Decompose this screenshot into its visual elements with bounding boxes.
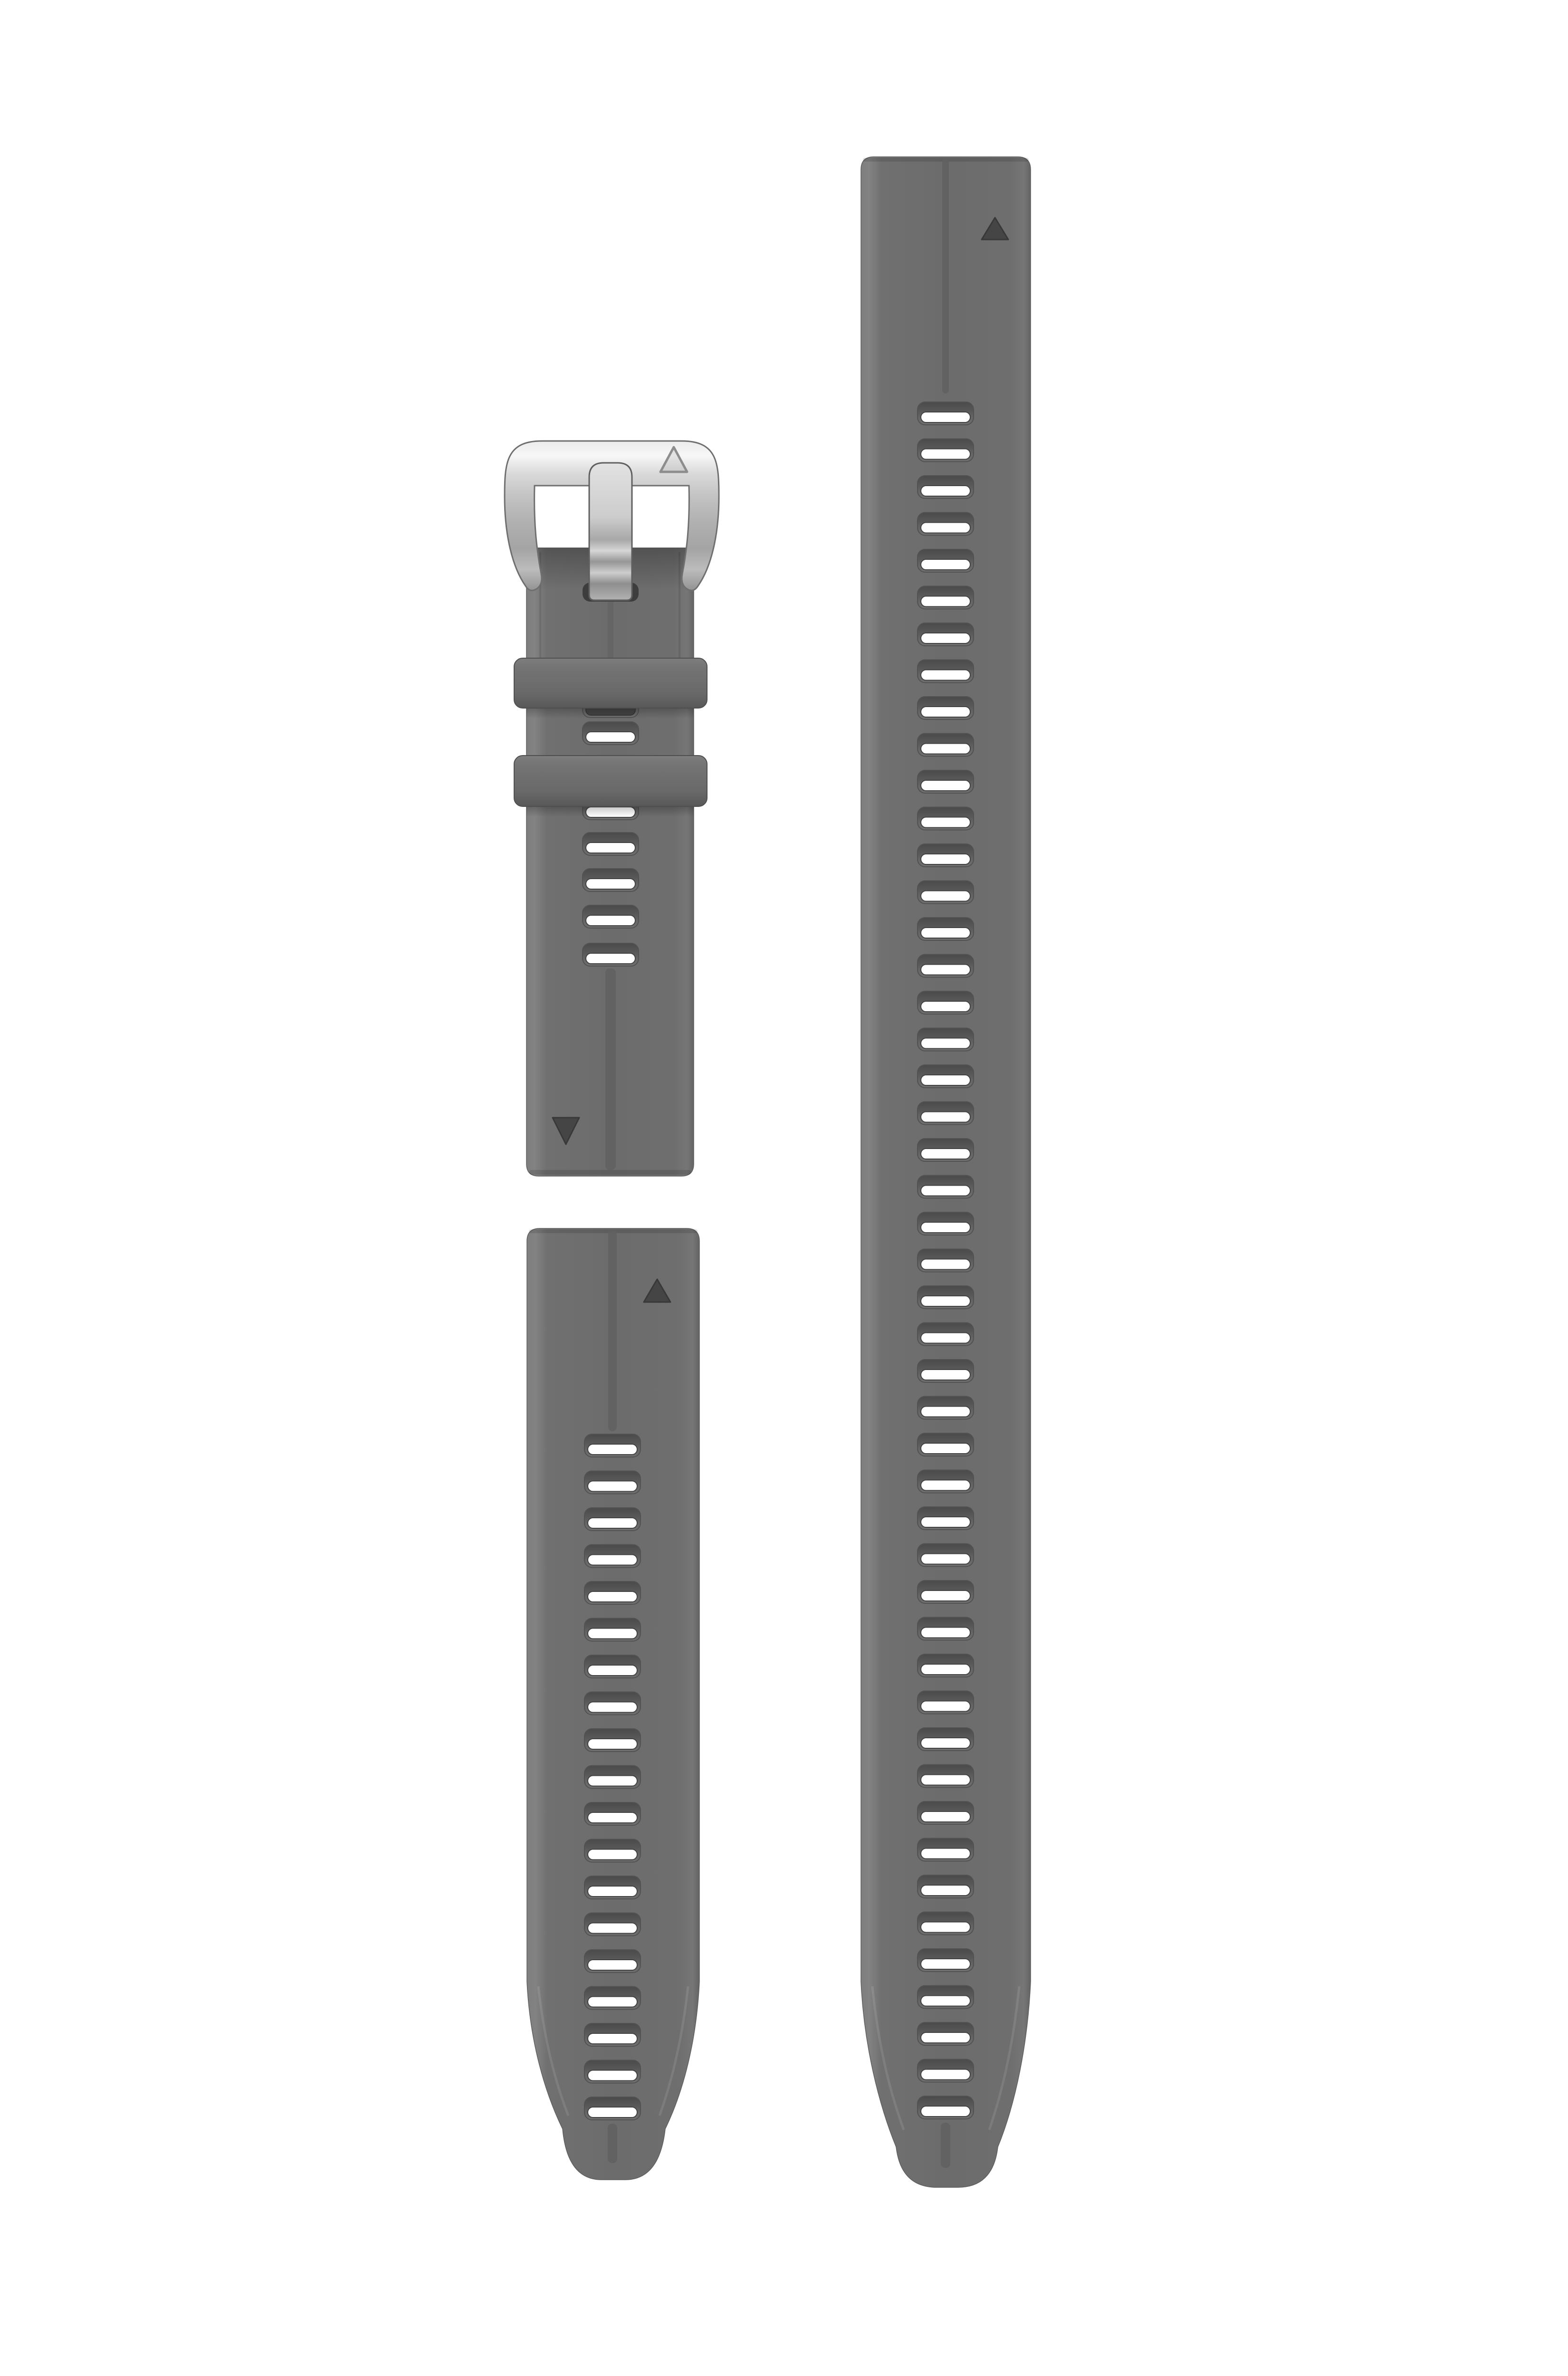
slot-hole xyxy=(588,1518,637,1528)
strap-slot xyxy=(584,1619,641,1641)
slot-hole xyxy=(586,879,635,889)
slot-hole xyxy=(921,1922,970,1933)
strap-slot xyxy=(584,1987,641,2010)
slot-hole xyxy=(588,1923,637,1934)
strap-slot xyxy=(918,1433,974,1456)
slot-hole xyxy=(921,1407,970,1417)
slot-hole xyxy=(588,2033,637,2044)
strap-slot xyxy=(918,549,974,572)
strap-slot xyxy=(918,844,974,867)
strap-slot xyxy=(584,1729,641,1752)
slot-hole xyxy=(921,412,970,422)
strap-slot xyxy=(918,1544,974,1567)
slot-hole xyxy=(921,1370,970,1380)
slot-hole xyxy=(921,1849,970,1859)
strap-slot xyxy=(918,881,974,904)
slot-hole xyxy=(921,449,970,460)
slot-hole xyxy=(586,953,635,964)
slot-hole xyxy=(921,1259,970,1270)
strap-slot xyxy=(584,1950,641,1973)
strap-slot xyxy=(918,1139,974,1161)
slot-hole xyxy=(921,817,970,828)
slot-hole xyxy=(586,732,635,742)
strap-slot xyxy=(918,1581,974,1603)
slot-hole xyxy=(921,744,970,754)
strap-slot xyxy=(584,1839,641,1862)
slot-hole xyxy=(921,1480,970,1491)
slot-hole xyxy=(921,1075,970,1085)
strap-slot xyxy=(918,1654,974,1677)
slot-hole xyxy=(921,1517,970,1527)
strap-slot xyxy=(918,2022,974,2045)
slot-hole xyxy=(921,1996,970,2006)
slot-hole xyxy=(921,559,970,570)
strap-slot xyxy=(918,734,974,757)
strap-slot xyxy=(584,2097,641,2120)
center-groove xyxy=(605,968,616,1170)
slot-hole xyxy=(921,1885,970,1896)
slot-hole xyxy=(921,2106,970,2117)
strap-slot xyxy=(918,1839,974,1861)
strap-slot xyxy=(918,513,974,536)
strap-slot xyxy=(584,2023,641,2046)
slot-hole xyxy=(921,1112,970,1122)
strap-slot xyxy=(918,918,974,940)
slot-hole xyxy=(588,1849,637,1860)
strap-slot xyxy=(918,1618,974,1640)
buckle-strap xyxy=(514,548,707,1176)
strap-slot xyxy=(584,1802,641,1825)
strap-slot xyxy=(918,807,974,830)
slot-hole xyxy=(921,965,970,975)
slot-hole xyxy=(921,1001,970,1012)
slot-hole xyxy=(588,2070,637,2081)
strap-slot xyxy=(918,1765,974,1788)
slot-hole xyxy=(921,1664,970,1675)
strap-slot xyxy=(918,770,974,793)
slot-hole xyxy=(588,1665,637,1676)
center-groove xyxy=(608,2124,617,2163)
slot-hole xyxy=(588,1776,637,1786)
strap-slot xyxy=(918,1801,974,1824)
strap-slot xyxy=(918,1286,974,1309)
slot-hole xyxy=(921,1628,970,1638)
strap-slot xyxy=(584,1876,641,1899)
strap-slot xyxy=(583,905,639,928)
slot-hole xyxy=(921,1038,970,1049)
strap-slot xyxy=(918,476,974,498)
strap-slot xyxy=(918,439,974,462)
strap-slot xyxy=(584,1766,641,1789)
slot-hole xyxy=(921,1738,970,1748)
background xyxy=(0,0,1568,2376)
strap-slot xyxy=(584,1581,641,1604)
slot-hole xyxy=(588,1591,637,1602)
center-groove xyxy=(942,159,949,393)
strap-slot xyxy=(918,1728,974,1751)
slot-hole xyxy=(588,1444,637,1455)
strap-slot xyxy=(918,623,974,646)
slot-hole xyxy=(921,2069,970,2080)
strap-slot xyxy=(918,660,974,683)
slot-hole xyxy=(921,928,970,938)
strap-slot xyxy=(584,1508,641,1531)
strap-slot xyxy=(583,833,639,855)
slot-hole xyxy=(921,633,970,643)
strap-slot xyxy=(584,1655,641,1678)
long-dive-extension-strap xyxy=(861,157,1031,2187)
strap-slot xyxy=(918,1212,974,1235)
strap-keeper-loop xyxy=(514,756,707,806)
strap-slot xyxy=(918,1470,974,1493)
slot-hole xyxy=(588,1739,637,1749)
slot-hole xyxy=(586,915,635,926)
slot-hole xyxy=(921,1333,970,1343)
strap-slot xyxy=(918,1912,974,1935)
slot-hole xyxy=(921,486,970,496)
center-groove xyxy=(941,2123,950,2168)
strap-slot xyxy=(918,1691,974,1714)
strap-slot xyxy=(583,869,639,891)
slot-hole xyxy=(921,1811,970,1822)
strap-slot xyxy=(918,1176,974,1198)
strap-slot xyxy=(918,2096,974,2119)
strap-slot xyxy=(584,1913,641,1936)
slot-hole xyxy=(921,1590,970,1601)
slot-hole xyxy=(588,1812,637,1823)
strap-slot xyxy=(918,1360,974,1382)
slot-hole xyxy=(921,1186,970,1196)
strap-slot xyxy=(584,1434,641,1457)
slot-hole xyxy=(921,1701,970,1712)
keeper-shadow xyxy=(526,806,694,817)
strap-slot xyxy=(918,697,974,719)
buckle-tongue xyxy=(589,463,632,600)
strap-slot xyxy=(918,1102,974,1125)
strap-slot xyxy=(918,1249,974,1272)
slot-hole xyxy=(921,523,970,533)
slot-hole xyxy=(921,1443,970,1454)
slot-hole xyxy=(588,1997,637,2007)
strap-slot xyxy=(918,586,974,609)
slot-hole xyxy=(921,596,970,607)
slot-hole xyxy=(588,1555,637,1565)
strap-slot xyxy=(584,2060,641,2083)
strap-keeper-loop xyxy=(514,658,707,708)
strap-slot xyxy=(584,1692,641,1715)
slot-hole xyxy=(588,2107,637,2117)
slot-hole xyxy=(588,1481,637,1492)
strap-slot xyxy=(584,1471,641,1494)
strap-slot xyxy=(918,991,974,1014)
slot-hole xyxy=(588,1886,637,1897)
slot-hole xyxy=(586,843,635,853)
strap-slot xyxy=(918,1949,974,1972)
strap-slot xyxy=(584,1545,641,1568)
slot-hole xyxy=(921,1222,970,1233)
strap-slot xyxy=(583,722,639,745)
strap-slot xyxy=(918,402,974,425)
slot-hole xyxy=(921,670,970,680)
strap-slot xyxy=(918,1397,974,1419)
slot-hole xyxy=(588,1702,637,1713)
strap-slot xyxy=(918,1028,974,1051)
strap-slot xyxy=(918,1323,974,1346)
slot-hole xyxy=(588,1629,637,1639)
slot-hole xyxy=(921,1554,970,1564)
strap-slot xyxy=(918,955,974,977)
center-groove xyxy=(608,1230,617,1431)
strap-slot xyxy=(918,2060,974,2082)
strap-slot xyxy=(918,1986,974,2009)
slot-hole xyxy=(921,1296,970,1306)
slot-hole xyxy=(921,854,970,864)
strap-slot xyxy=(918,1065,974,1088)
slot-hole xyxy=(588,1960,637,1970)
slot-hole xyxy=(921,707,970,717)
spare-tail-strap xyxy=(527,1228,699,2180)
strap-slot xyxy=(918,1875,974,1898)
slot-hole xyxy=(921,1775,970,1785)
slot-hole xyxy=(921,2032,970,2043)
slot-hole xyxy=(921,1959,970,1969)
slot-hole xyxy=(921,891,970,901)
slot-hole xyxy=(921,1149,970,1159)
edge-shade xyxy=(529,1170,691,1175)
keeper-shadow xyxy=(526,708,694,719)
strap-slot xyxy=(918,1507,974,1530)
slot-hole xyxy=(921,780,970,791)
strap-slot xyxy=(583,943,639,966)
product-photo xyxy=(0,0,1568,2376)
product-image xyxy=(0,0,1568,2376)
